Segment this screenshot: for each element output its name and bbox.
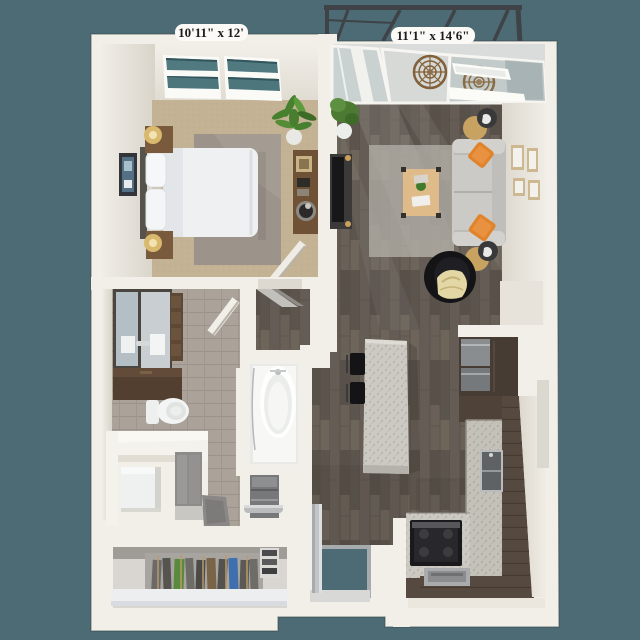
svg-text:10'11" x 12': 10'11" x 12' bbox=[178, 25, 244, 40]
svg-text:11'1" x 14'6": 11'1" x 14'6" bbox=[397, 28, 470, 43]
